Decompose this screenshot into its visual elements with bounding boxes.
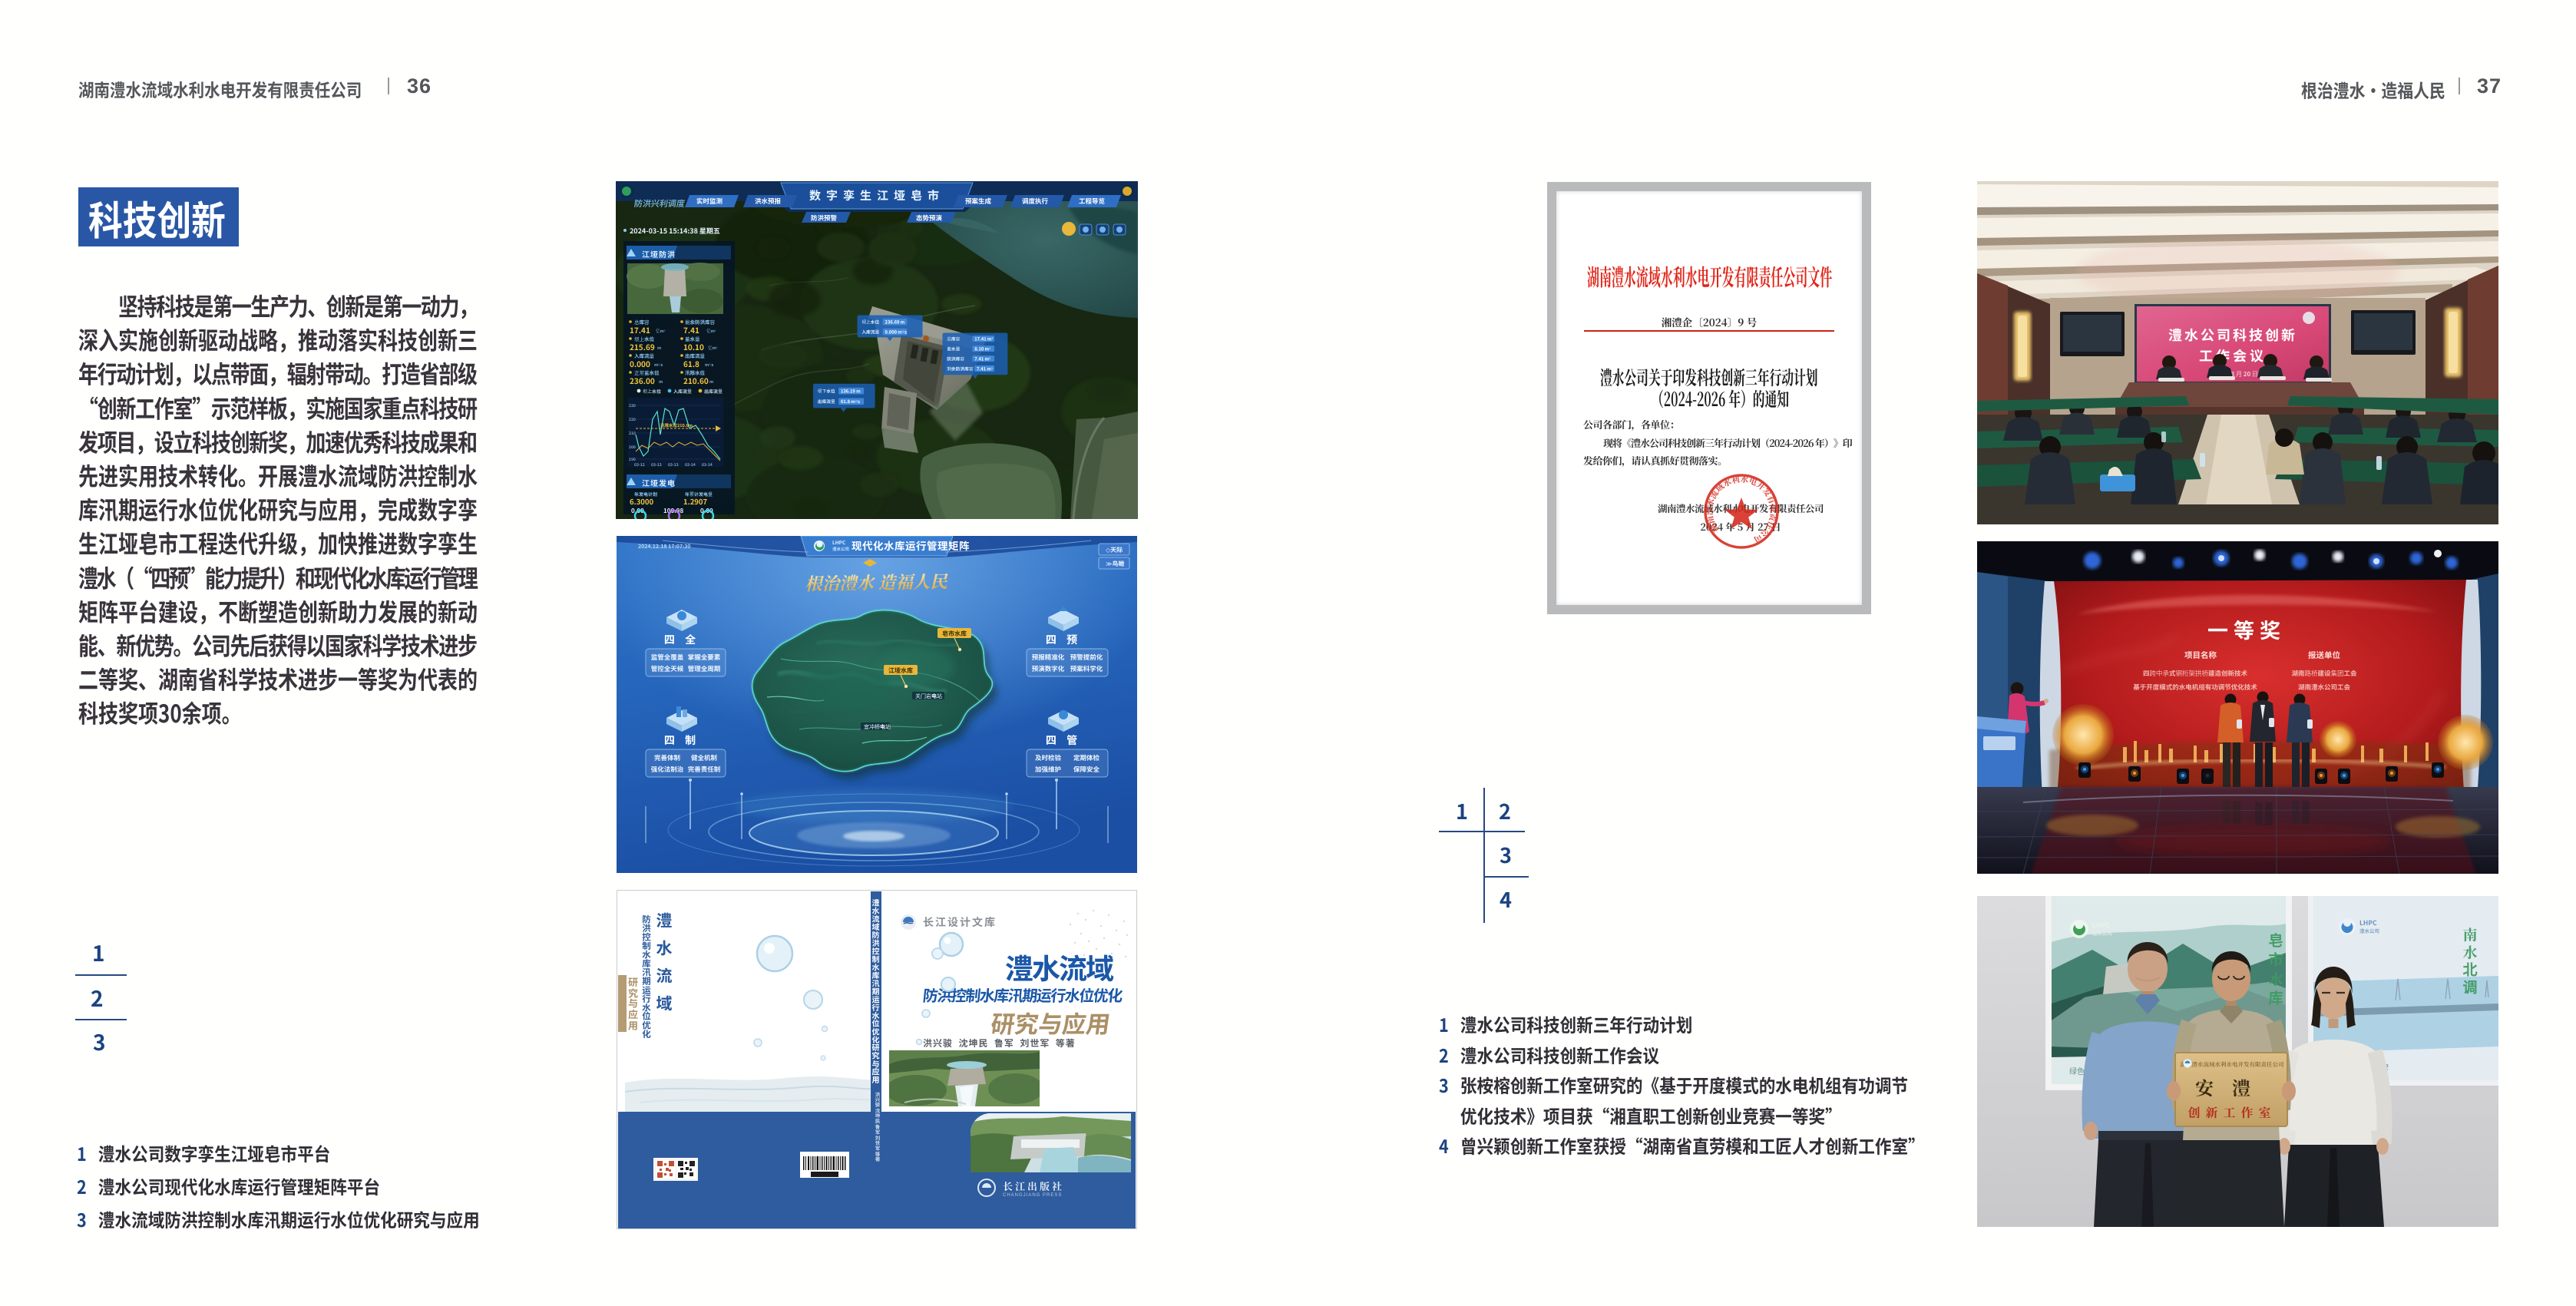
svg-text:洪水预报: 洪水预报 <box>755 197 782 206</box>
svg-text:≫鸟瞰: ≫鸟瞰 <box>1106 560 1124 568</box>
svg-text:215.69: 215.69 <box>630 341 655 352</box>
svg-text:136.19 m: 136.19 m <box>841 387 861 394</box>
svg-text:预案生成: 预案生成 <box>965 197 992 206</box>
svg-text:四 全: 四 全 <box>664 632 699 647</box>
svg-text:强化法制治: 强化法制治 <box>651 765 684 774</box>
svg-text:7.41 m³: 7.41 m³ <box>977 365 993 372</box>
svg-text:200: 200 <box>629 445 636 450</box>
svg-text:亿m³: 亿m³ <box>708 345 718 351</box>
svg-text:◇天际: ◇天际 <box>1106 546 1123 554</box>
svg-text:190: 190 <box>629 457 636 462</box>
svg-text:澧水公司: 澧水公司 <box>832 546 849 552</box>
svg-text:预案科学化: 预案科学化 <box>1070 664 1103 673</box>
svg-text:关门岩电站: 关门岩电站 <box>915 693 942 700</box>
svg-text:四跨中承式钢桁架拱桥建造创新技术: 四跨中承式钢桁架拱桥建造创新技术 <box>2143 669 2248 678</box>
svg-text:态势预演: 态势预演 <box>916 213 943 223</box>
svg-text:工作会议: 工作会议 <box>2199 346 2267 365</box>
svg-text:数字孪生江垭皂市: 数字孪生江垭皂市 <box>809 187 944 203</box>
svg-text:03-14: 03-14 <box>685 462 696 468</box>
svg-text:坝上水位: 坝上水位 <box>643 388 661 395</box>
svg-text:m: m <box>709 379 713 385</box>
svg-text:出库流量: 出库流量 <box>704 388 723 395</box>
svg-text:03-13: 03-13 <box>668 462 679 468</box>
svg-text:实时监测: 实时监测 <box>696 197 723 206</box>
svg-text:入库流量: 入库流量 <box>861 328 879 335</box>
svg-text:预警提前化: 预警提前化 <box>1070 653 1103 662</box>
svg-text:皂市水库: 皂市水库 <box>2266 932 2287 1010</box>
svg-text:10.10: 10.10 <box>683 341 704 352</box>
svg-text:完善责任制: 完善责任制 <box>688 765 721 774</box>
svg-text:2024.12.18 17:07:30: 2024.12.18 17:07:30 <box>638 543 691 551</box>
svg-text:坝上水位: 坝上水位 <box>861 318 879 325</box>
svg-text:澧水公司科技创新: 澧水公司科技创新 <box>2168 325 2297 345</box>
svg-text:03-14: 03-14 <box>702 462 713 468</box>
svg-text:剩余防洪库容: 剩余防洪库容 <box>947 365 974 372</box>
svg-text:报送单位: 报送单位 <box>2308 650 2341 661</box>
svg-text:掌握全要素: 掌握全要素 <box>688 653 721 662</box>
svg-text:湖南澧水公司工会: 湖南澧水公司工会 <box>2298 683 2351 692</box>
svg-text:220: 220 <box>629 417 636 422</box>
svg-text:现代化水库运行管理矩阵: 现代化水库运行管理矩阵 <box>852 537 970 553</box>
svg-text:调度执行: 调度执行 <box>1022 197 1049 206</box>
svg-text:6.3000: 6.3000 <box>630 496 654 507</box>
svg-text:防洪预警: 防洪预警 <box>811 213 838 223</box>
svg-text:健全机制: 健全机制 <box>691 753 717 762</box>
svg-text:完善体制: 完善体制 <box>654 753 680 762</box>
svg-text:基于开度模式的水电机组有功调节优化技术: 基于开度模式的水电机组有功调节优化技术 <box>2133 683 2257 692</box>
svg-text:总库容: 总库容 <box>947 336 960 342</box>
svg-text:四 预: 四 预 <box>1046 632 1081 647</box>
svg-text:管理全周期: 管理全周期 <box>688 664 721 673</box>
svg-text:坝下水位: 坝下水位 <box>818 387 835 394</box>
svg-text:根治澧水 造福人民: 根治澧水 造福人民 <box>805 568 949 595</box>
svg-text:亿m³: 亿m³ <box>706 328 716 334</box>
svg-text:1.2907: 1.2907 <box>683 496 708 507</box>
svg-text:湖南澧水流域水利水电开发有限责任公司: 湖南澧水流域水利水电开发有限责任公司 <box>2181 1060 2284 1069</box>
svg-text:创新工作室: 创新工作室 <box>2187 1103 2276 1121</box>
svg-text:预报精准化: 预报精准化 <box>1032 653 1065 662</box>
svg-text:230: 230 <box>629 403 636 408</box>
svg-text:宜冲桥电站: 宜冲桥电站 <box>864 723 891 731</box>
svg-text:61.8 m³/s: 61.8 m³/s <box>841 398 860 405</box>
svg-text:03-12: 03-12 <box>634 462 645 468</box>
svg-text:8.10 m³: 8.10 m³ <box>974 346 990 352</box>
svg-text:澧水公司: 澧水公司 <box>2092 929 2112 937</box>
svg-text:m: m <box>659 379 663 385</box>
svg-text:出库流量: 出库流量 <box>818 398 835 405</box>
svg-text:安澧: 安澧 <box>2195 1073 2269 1100</box>
svg-text:m: m <box>657 345 661 351</box>
svg-text:工程导览: 工程导览 <box>1079 197 1106 206</box>
svg-text:蓄水量: 蓄水量 <box>947 346 960 352</box>
svg-text:210: 210 <box>629 431 636 436</box>
svg-text:江垭发电: 江垭发电 <box>642 477 676 488</box>
svg-text:监管全覆盖: 监管全覆盖 <box>651 653 684 662</box>
svg-text:m³/s: m³/s <box>705 362 713 368</box>
svg-text:南水北调: 南水北调 <box>2460 927 2481 997</box>
svg-text:236.00: 236.00 <box>630 375 655 386</box>
svg-text:03-13: 03-13 <box>651 462 662 468</box>
svg-text:210.60: 210.60 <box>683 375 709 386</box>
svg-text:7.41 m³: 7.41 m³ <box>974 355 990 362</box>
svg-text:加强维护: 加强维护 <box>1035 765 1061 774</box>
svg-text:湖南路桥建设集团工会: 湖南路桥建设集团工会 <box>2291 669 2357 678</box>
svg-text:236.69 m: 236.69 m <box>885 318 905 325</box>
svg-text:一等奖: 一等奖 <box>2207 614 2286 644</box>
svg-text:0.000 m³/s: 0.000 m³/s <box>885 328 908 335</box>
svg-text:防洪兴利调度: 防洪兴利调度 <box>633 197 686 210</box>
svg-text:入库流量: 入库流量 <box>673 388 692 395</box>
svg-text:0.000: 0.000 <box>630 358 650 369</box>
svg-text:汛限水位210.6m: 汛限水位210.6m <box>660 422 693 428</box>
svg-text:管控全天候: 管控全天候 <box>651 664 684 673</box>
svg-text:定期体检: 定期体检 <box>1073 753 1100 762</box>
svg-text:皂市水库: 皂市水库 <box>942 630 967 638</box>
svg-text:17.41 m³: 17.41 m³ <box>974 336 993 342</box>
svg-text:江垭防洪: 江垭防洪 <box>642 248 676 260</box>
svg-text:61.8: 61.8 <box>683 358 699 369</box>
svg-text:LHPC: LHPC <box>832 538 846 546</box>
svg-text:四 制: 四 制 <box>664 732 699 748</box>
svg-text:防洪库容: 防洪库容 <box>947 355 964 362</box>
svg-text:保障安全: 保障安全 <box>1073 765 1100 774</box>
svg-text:项目名称: 项目名称 <box>2184 650 2217 661</box>
svg-text:及时检验: 及时检验 <box>1035 753 1062 762</box>
svg-text:澧水公司: 澧水公司 <box>2359 927 2379 934</box>
svg-text:17.41: 17.41 <box>630 324 650 336</box>
svg-text:亿m³: 亿m³ <box>656 328 666 334</box>
svg-text:四 管: 四 管 <box>1046 732 1081 748</box>
svg-text:江垭水库: 江垭水库 <box>888 666 913 675</box>
svg-text:预演数字化: 预演数字化 <box>1032 664 1065 673</box>
svg-text:m³/s: m³/s <box>654 362 663 368</box>
svg-text:7.41: 7.41 <box>683 324 699 336</box>
svg-text:2024-03-15 15:14:38 星期五: 2024-03-15 15:14:38 星期五 <box>630 226 720 236</box>
